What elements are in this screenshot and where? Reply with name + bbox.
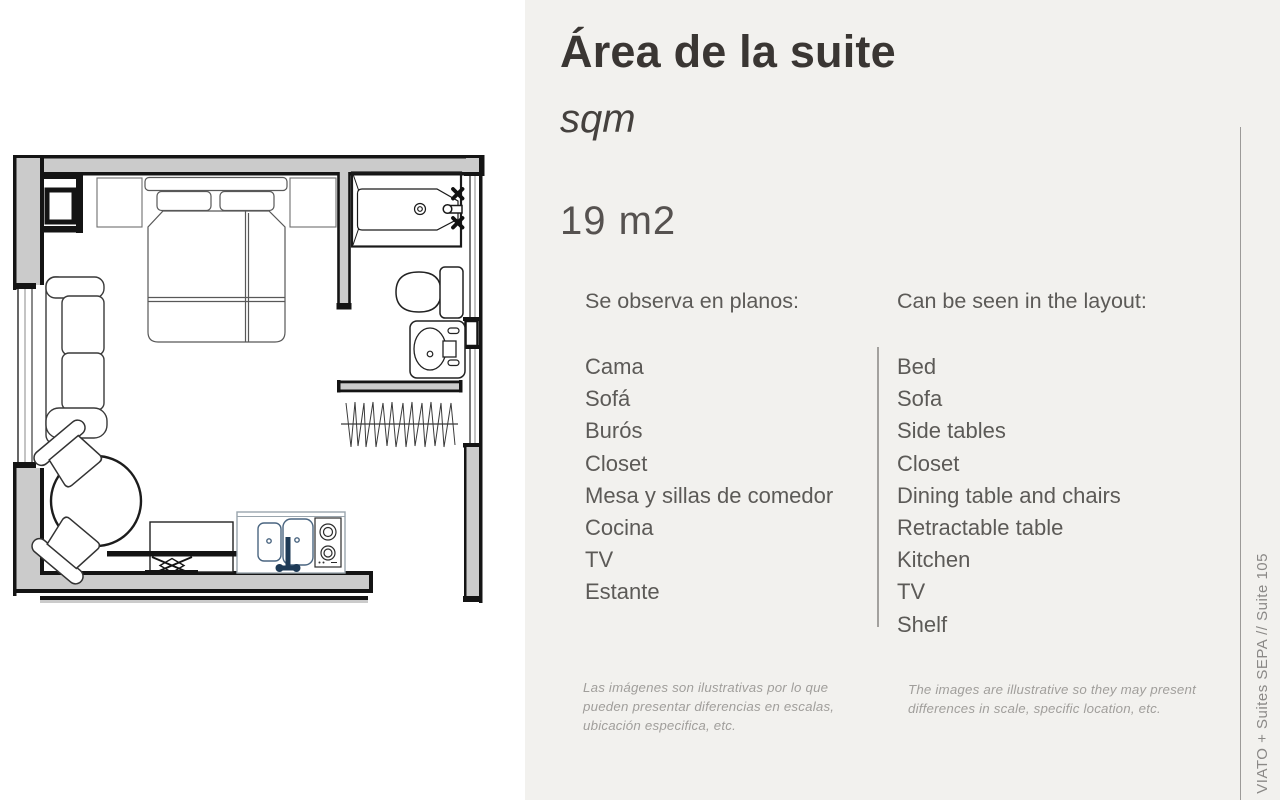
bed: [145, 178, 287, 343]
page-title: Área de la suite: [560, 26, 896, 78]
side-rule: [1240, 127, 1241, 800]
list-item-side-tables: Side tables: [897, 415, 1207, 447]
list-item-tv-es: TV: [585, 544, 877, 576]
kitchen-counter: [237, 512, 345, 573]
list-item-retractable: Retractable table: [897, 512, 1207, 544]
list-item-tv-en: TV: [897, 576, 1207, 608]
sofa: [46, 277, 107, 444]
tv: [107, 551, 237, 557]
list-item-kitchen: Kitchen: [897, 544, 1207, 576]
column-divider: [877, 347, 879, 627]
english-disclaimer: The images are illustrative so they may …: [908, 681, 1208, 719]
list-item-estante: Estante: [585, 576, 877, 608]
headboard: [145, 178, 287, 191]
list-item-cama: Cama: [585, 351, 877, 383]
list-item-shelf: Shelf: [897, 609, 1207, 641]
info-panel: Área de la suite sqm 19 m2 Se observa en…: [525, 0, 1280, 800]
list-item-sofa-en: Sofa: [897, 383, 1207, 415]
list-item-bed: Bed: [897, 351, 1207, 383]
pillow-right: [220, 192, 274, 211]
spanish-list-header: Se observa en planos:: [585, 288, 877, 314]
list-item-buros: Burós: [585, 415, 877, 447]
cooktop: [315, 518, 341, 567]
list-item-closet-en: Closet: [897, 448, 1207, 480]
english-column: Can be seen in the layout: Bed Sofa Side…: [897, 288, 1207, 641]
pillow-left: [157, 192, 211, 211]
spanish-feature-list: Cama Sofá Burós Closet Mesa y sillas de …: [585, 351, 877, 609]
subtitle-sqm: sqm: [560, 97, 636, 142]
spanish-column: Se observa en planos: Cama Sofá Burós Cl…: [585, 288, 877, 609]
list-item-cocina: Cocina: [585, 512, 877, 544]
area-value: 19 m2: [560, 199, 676, 244]
slide: Área de la suite sqm 19 m2 Se observa en…: [0, 0, 1280, 800]
toilet: [396, 267, 463, 318]
side-label: VIATO + Suites SEPA // Suite 105: [1254, 553, 1271, 794]
list-item-mesa: Mesa y sillas de comedor: [585, 480, 877, 512]
list-item-sofa: Sofá: [585, 383, 877, 415]
list-item-dining: Dining table and chairs: [897, 480, 1207, 512]
english-feature-list: Bed Sofa Side tables Closet Dining table…: [897, 351, 1207, 641]
bathroom-sink: [410, 321, 465, 378]
spanish-disclaimer: Las imágenes son ilustrativas por lo que…: [583, 679, 861, 736]
floor-plan: [0, 0, 525, 800]
english-list-header: Can be seen in the layout:: [897, 288, 1207, 314]
floor-plan-svg: [0, 0, 525, 800]
list-item-closet: Closet: [585, 448, 877, 480]
closet-hanging-clothes: [341, 402, 458, 447]
